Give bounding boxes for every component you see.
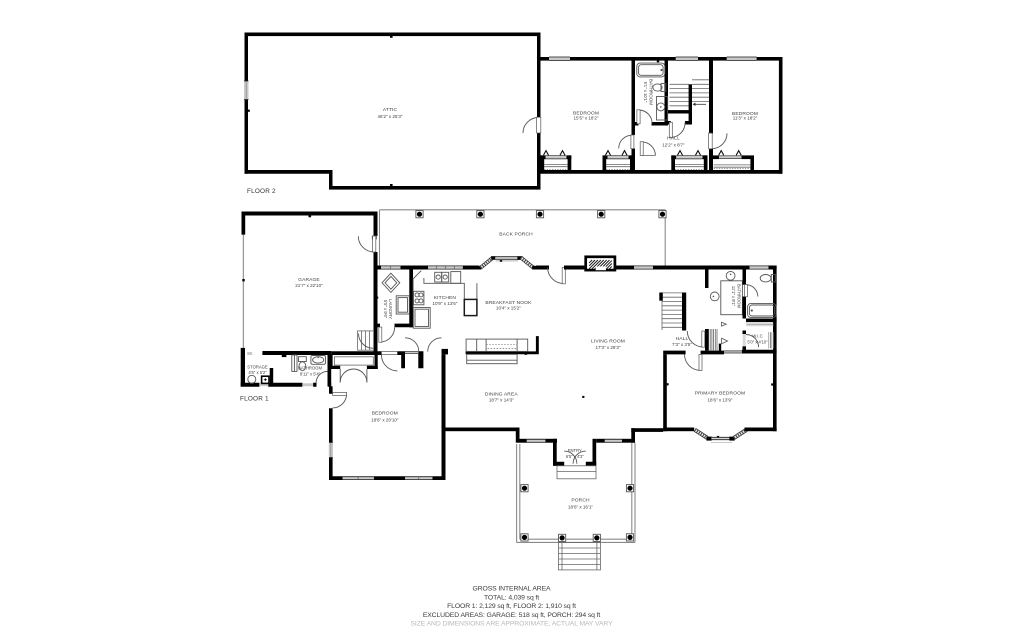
svg-text:FLOOR 2: FLOOR 2 — [247, 188, 276, 195]
svg-text:18'6" x 16'1": 18'6" x 16'1" — [568, 505, 593, 510]
svg-text:BATHROOM: BATHROOM — [736, 284, 741, 308]
svg-text:FLOOR 1: FLOOR 1 — [240, 396, 269, 403]
svg-text:BACK PORCH: BACK PORCH — [499, 232, 533, 238]
svg-text:7'3" x 3'5": 7'3" x 3'5" — [672, 342, 692, 347]
svg-text:TOTAL: 4,039 sq ft: TOTAL: 4,039 sq ft — [484, 594, 539, 601]
svg-text:PORCH: PORCH — [571, 498, 590, 504]
svg-text:5'0" x 4'10": 5'0" x 4'10" — [747, 340, 768, 345]
svg-text:ENTRY: ENTRY — [568, 448, 582, 453]
svg-text:4'5" x 5'2": 4'5" x 5'2" — [248, 370, 267, 375]
svg-text:15'5" x 18'2": 15'5" x 18'2" — [574, 116, 599, 121]
svg-text:BEDROOM: BEDROOM — [372, 411, 398, 417]
svg-text:48'2" x 25'3": 48'2" x 25'3" — [378, 114, 403, 119]
svg-text:5'5" x 9'6": 5'5" x 9'6" — [383, 300, 388, 319]
svg-text:BATHROOM: BATHROOM — [298, 366, 322, 371]
svg-text:STORAGE: STORAGE — [247, 365, 268, 370]
svg-text:SIZE AND DIMENSIONS ARE APPROX: SIZE AND DIMENSIONS ARE APPROXIMATE, ACT… — [410, 621, 613, 628]
svg-text:11'1" x 8'1": 11'1" x 8'1" — [731, 286, 736, 307]
svg-text:EXCLUDED AREAS: GARAGE: 518 sq: EXCLUDED AREAS: GARAGE: 518 sq ft, PORCH… — [423, 612, 601, 619]
svg-text:FLOOR 1: 2,129 sq ft, FLOOR 2:: FLOOR 1: 2,129 sq ft, FLOOR 2: 1,910 sq … — [447, 603, 576, 610]
svg-text:5'1" x 10'1": 5'1" x 10'1" — [643, 82, 648, 103]
svg-text:11'3" x 18'2": 11'3" x 18'2" — [733, 116, 758, 121]
svg-text:LAUNDRY: LAUNDRY — [388, 299, 393, 319]
svg-text:10'9" x 13'6": 10'9" x 13'6" — [432, 301, 457, 306]
svg-text:12'2" x 8'7": 12'2" x 8'7" — [662, 143, 685, 148]
svg-text:8'11" x 5'4": 8'11" x 5'4" — [300, 372, 321, 377]
svg-text:6'5" x 4'3": 6'5" x 4'3" — [566, 454, 584, 459]
svg-text:HALL: HALL — [667, 136, 680, 142]
svg-text:17'3" x 28'3": 17'3" x 28'3" — [596, 345, 621, 350]
svg-text:ATTIC: ATTIC — [383, 107, 398, 113]
svg-text:W.I.C: W.I.C — [752, 334, 762, 339]
svg-text:BATHROOM: BATHROOM — [649, 79, 654, 105]
svg-text:PRIMARY BEDROOM: PRIMARY BEDROOM — [695, 391, 746, 397]
svg-text:18'7" x 14'3": 18'7" x 14'3" — [489, 398, 514, 403]
svg-text:18'6" x 20'10": 18'6" x 20'10" — [371, 418, 399, 423]
svg-text:LIVING ROOM: LIVING ROOM — [591, 339, 625, 345]
svg-text:18'6" x 13'9": 18'6" x 13'9" — [708, 398, 733, 403]
svg-text:GROSS INTERNAL AREA: GROSS INTERNAL AREA — [473, 585, 551, 592]
svg-text:21'7" x 22'10": 21'7" x 22'10" — [295, 283, 323, 288]
svg-text:10'4" x 15'2": 10'4" x 15'2" — [496, 306, 521, 311]
